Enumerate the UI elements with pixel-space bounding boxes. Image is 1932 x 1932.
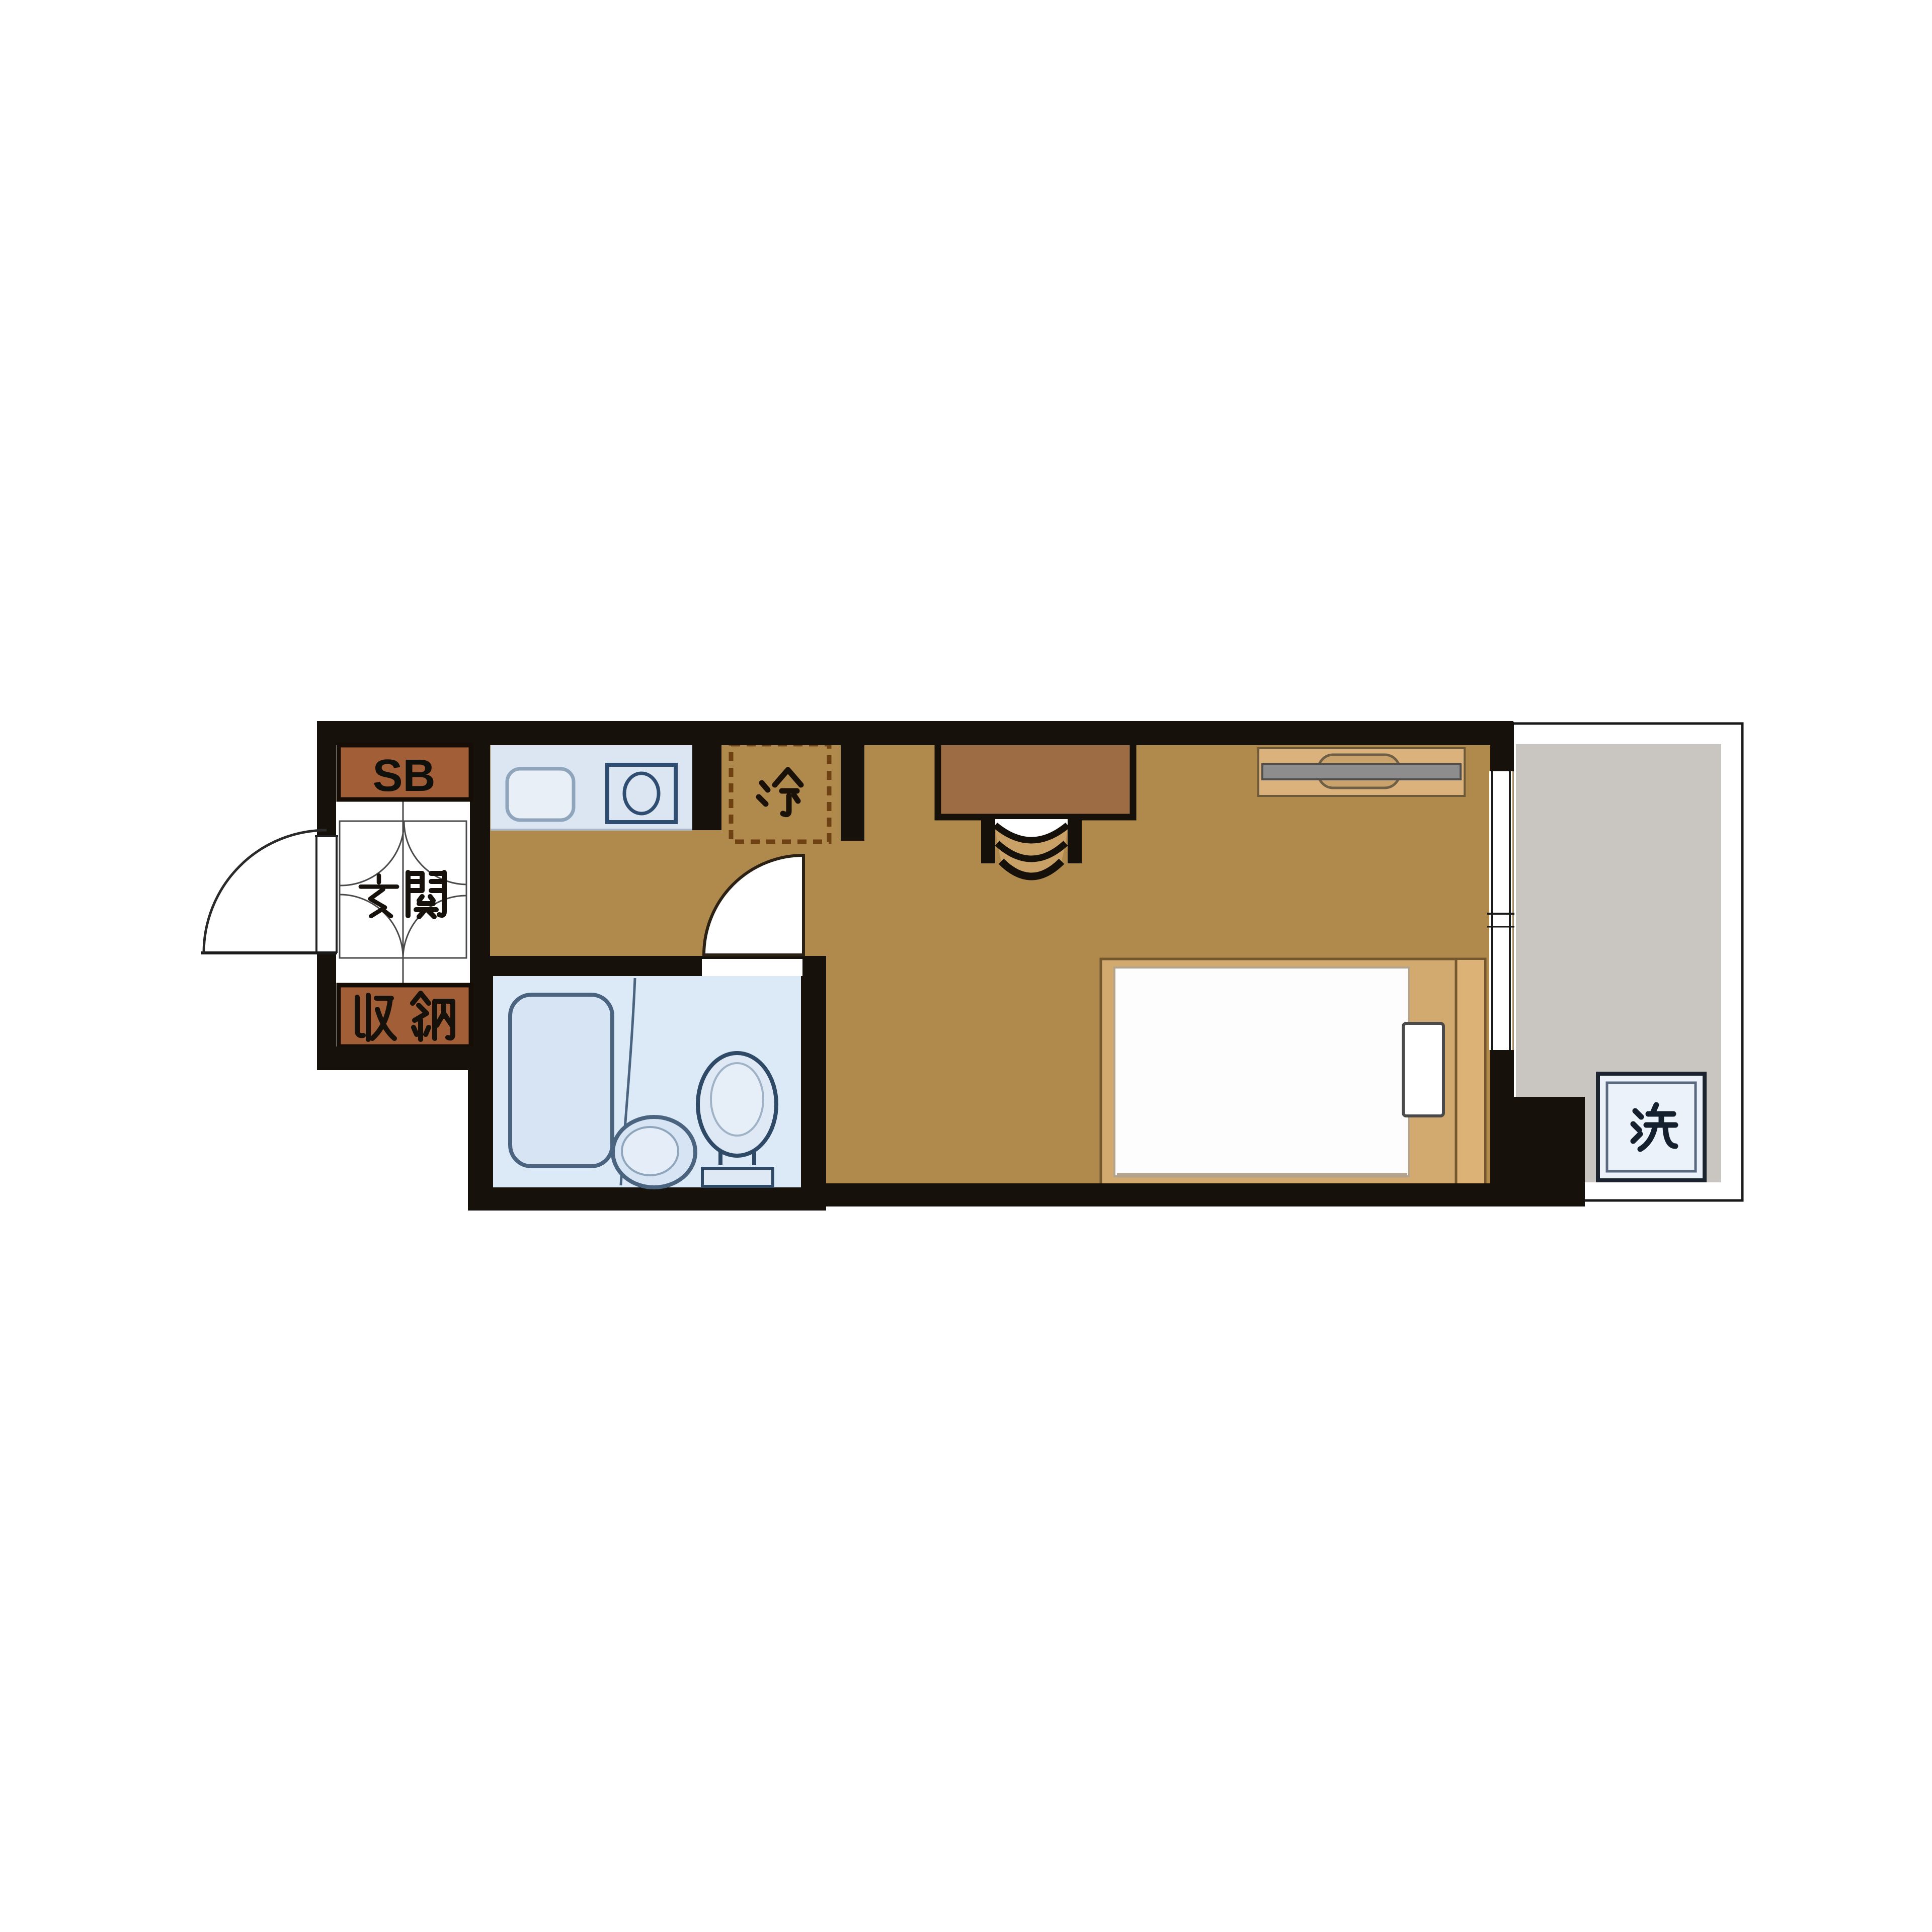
- svg-text:SB: SB: [372, 751, 435, 801]
